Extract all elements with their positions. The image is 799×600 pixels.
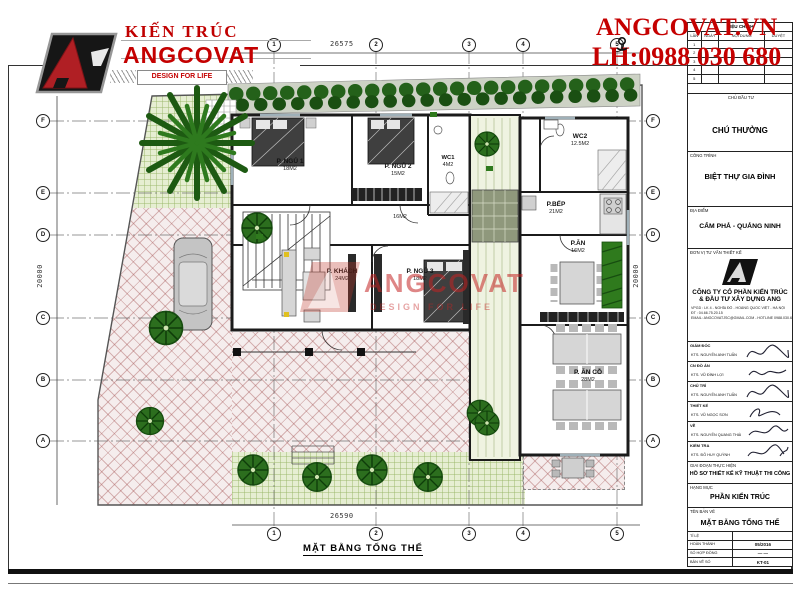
meta-row-scale: TỈ LỆ	[688, 531, 792, 540]
signer-row-project-lead: CN ĐỒ ÁNKTS. VŨ ĐÌNH LỢI	[688, 361, 792, 381]
signature	[744, 443, 790, 461]
survey-marker-icon	[615, 36, 629, 52]
room-label-dining: P.ĂN16M2	[550, 240, 606, 254]
room-label-banquet: P. ĂN CỖ28M2	[558, 369, 618, 383]
tagline-hatch-right	[227, 70, 253, 83]
grid-bubble-row-b-right: B	[646, 373, 660, 387]
logo-block: KIẾN TRÚC ANGCOVAT DESIGN FOR LIFE	[15, 6, 315, 102]
grid-bubble-row-a-left: A	[36, 434, 50, 448]
dim-left: 20000	[36, 264, 44, 288]
car	[174, 238, 212, 330]
phase-section: GIAI ĐOẠN THỰC HIỆN HỒ SƠ THIẾT KẾ KỸ TH…	[688, 461, 792, 483]
company-line2: & ĐẦU TƯ XÂY DỰNG ANG	[688, 296, 792, 303]
company-info-3: EMAIL: ANGCOVATJSC@GMAIL.COM - HOTLINE 0…	[691, 316, 792, 320]
signer-row-drafter: VẼKTS. NGUYỄN QUANG THÁI	[688, 421, 792, 441]
location-name: CẨM PHẢ - QUẢNG NINH	[688, 223, 792, 230]
project-name: BIỆT THỰ GIA ĐÌNH	[688, 172, 792, 181]
phase-value: HỒ SƠ THIẾT KẾ KỸ THUẬT THI CÔNG	[688, 471, 792, 477]
grid-bubble-col-3-bottom: 3	[462, 527, 476, 541]
brand-name-text: ANGCOVAT	[123, 42, 259, 69]
signer-row-lead: CHỦ TRÌKTS. NGUYỄN ANH TUẤN	[688, 381, 792, 401]
brand-top-text: KIẾN TRÚC	[125, 22, 239, 42]
grid-bubble-row-c-left: C	[36, 311, 50, 325]
meta-row-contract: SỐ HỢP ĐỒNG— —	[688, 549, 792, 558]
grid-bubble-row-d-right: D	[646, 228, 660, 242]
plant-tag	[430, 112, 437, 117]
company-line1: CÔNG TY CỔ PHẦN KIẾN TRÚC	[688, 289, 792, 296]
grid-bubble-row-e-right: E	[646, 186, 660, 200]
signature	[744, 363, 790, 381]
grid-bubble-row-f-right: F	[646, 114, 660, 128]
grid-bubble-row-e-left: E	[36, 186, 50, 200]
company-logo-icon	[720, 257, 760, 287]
room-label-wc1: WC14M2	[428, 155, 468, 169]
room-label-bedroom2: P. NGỦ 215M2	[368, 163, 428, 177]
signer-row-designer: THIẾT KẾKTS. VŨ NGỌC SƠN	[688, 401, 792, 421]
grid-bubble-col-5-bottom: 5	[610, 527, 624, 541]
signature	[744, 383, 790, 401]
investor-section: CHỦ ĐẦU TƯ CHÚ THƯỞNG	[688, 93, 792, 151]
signature	[744, 423, 790, 441]
grid-bubble-col-3-top: 3	[462, 38, 476, 52]
signer-row-checker: KIỂM TRAKTS. ĐỖ HUY QUỲNH	[688, 441, 792, 461]
grid-bubble-row-d-left: D	[36, 228, 50, 242]
drawing-name: MẶT BẰNG TỔNG THỂ	[688, 518, 792, 527]
signer-row-director: GIÁM ĐỐCKTS. NGUYỄN ANH TUẤN	[688, 341, 792, 361]
company-info-1: VPGD : LK 4 - NGHĨA ĐÔ - HOÀNG QUỐC VIỆT…	[691, 306, 792, 310]
grid-bubble-col-4-top: 4	[516, 38, 530, 52]
room-label-bedroom3: P. NGỦ 318M2	[390, 268, 450, 282]
meta-row-number: BẢN VẼ SỐKT-01	[688, 557, 792, 566]
drawing-name-section: TÊN BẢN VẼ MẶT BẰNG TỔNG THỂ	[688, 507, 792, 531]
signature	[744, 343, 790, 361]
category-value: PHẦN KIẾN TRÚC	[688, 494, 792, 501]
room-label-bedroom1: P. NGỦ 118M2	[260, 158, 320, 172]
grid-bubble-row-a-right: A	[646, 434, 660, 448]
grid-bubble-col-2-bottom: 2	[369, 527, 383, 541]
room-label-living: P. KHÁCH24M2	[312, 268, 372, 282]
room-label-wc2: WC212.5M2	[550, 133, 610, 147]
location-section: ĐỊA ĐIỂM CẨM PHẢ - QUẢNG NINH	[688, 206, 792, 248]
consultant-section: ĐƠN VỊ TƯ VẤN THIẾT KẾ CÔNG TY CỔ PHẦN K…	[688, 248, 792, 341]
grid-bubble-row-c-right: C	[646, 311, 660, 325]
dim-right: 20000	[632, 264, 640, 288]
grid-bubble-row-b-left: B	[36, 373, 50, 387]
grid-bubble-col-2-top: 2	[369, 38, 383, 52]
plant-tag	[486, 166, 493, 171]
grid-bubble-col-1-bottom: 1	[267, 527, 281, 541]
dim-bottom: 26590	[330, 512, 354, 520]
room-label-hall: 16M2	[380, 214, 420, 221]
company-info-2: ĐT : 04.66.75.20.15	[691, 311, 792, 315]
project-section: CÔNG TRÌNH BIỆT THỰ GIA ĐÌNH	[688, 151, 792, 206]
category-section: HẠNG MỤC PHẦN KIẾN TRÚC	[688, 483, 792, 507]
plant-tag	[256, 234, 263, 239]
title-block: HIỆU CHỈNH LẦNNGÀY NỘI DUNGDUYỆT 1 2 3 4…	[687, 22, 793, 567]
signature	[744, 403, 790, 421]
drawing-sheet: KIẾN TRÚC ANGCOVAT DESIGN FOR LIFE ANGCO…	[0, 0, 799, 600]
grid-bubble-col-4-bottom: 4	[516, 527, 530, 541]
revision-row: 5	[688, 75, 792, 84]
plan-title: MẶT BẰNG TỔNG THỂ	[288, 543, 438, 554]
brand-tagline: DESIGN FOR LIFE	[137, 70, 227, 85]
tagline-hatch-left	[110, 70, 136, 83]
investor-name: CHÚ THƯỞNG	[688, 126, 792, 135]
room-label-kitchen: P.BẾP21M2	[528, 201, 584, 215]
dim-top: 26575	[330, 40, 354, 48]
meta-row-completed: HOÀN THÀNH05/2016	[688, 540, 792, 549]
